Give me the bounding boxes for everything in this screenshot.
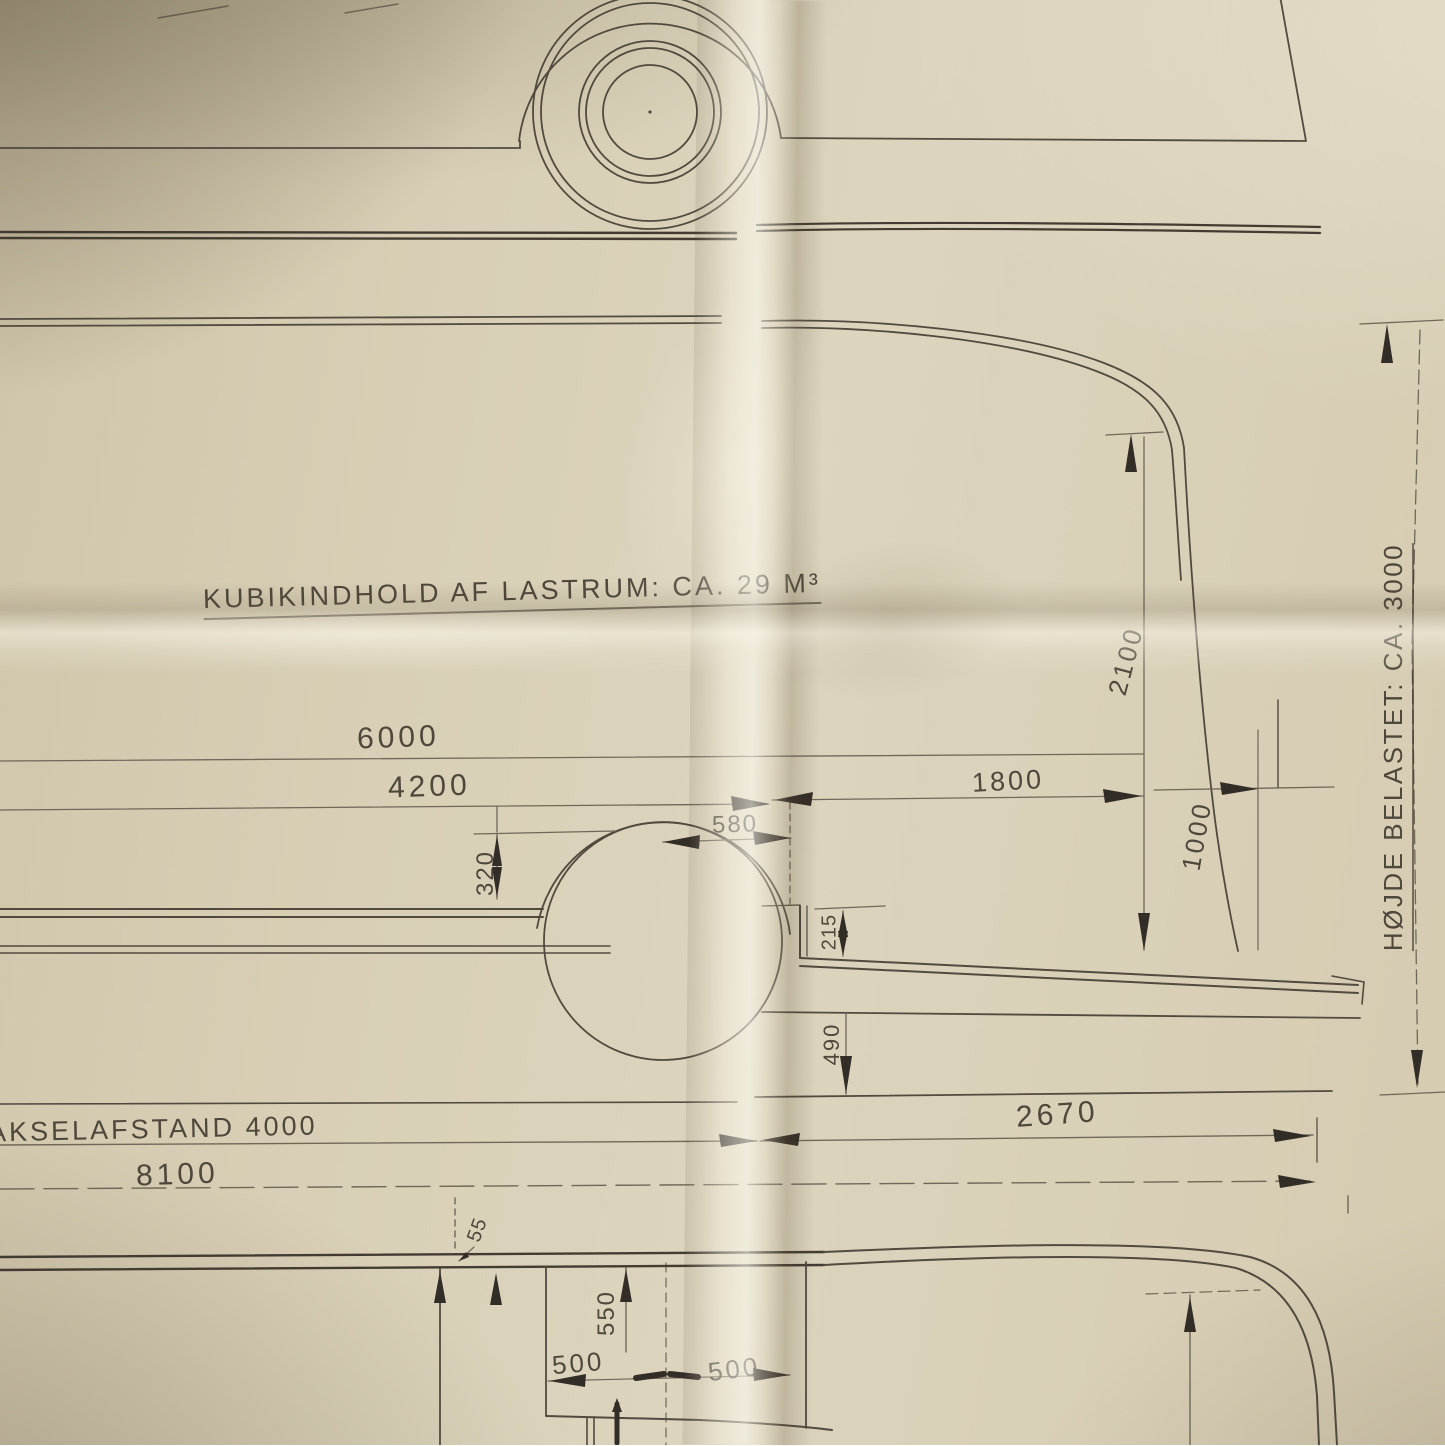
dim-label-6000: 6000 (356, 720, 440, 757)
dim-label-550: 550 (593, 1290, 621, 1336)
dim-label-500-left: 500 (551, 1346, 606, 1381)
bottom-truck-top-view (0, 1245, 1337, 1445)
dim-label-320: 320 (472, 850, 500, 896)
blueprint-photo: KUBIKINDHOLD AF LASTRUM: CA. 29 M³ AKSEL… (0, 0, 1445, 1445)
dim-label-4200: 4200 (387, 769, 471, 806)
dim-label-580: 580 (712, 810, 759, 840)
dim-label-500-right: 500 (706, 1351, 762, 1388)
annotation-height-loaded: HØJDE BELASTET: CA. 3000 (1378, 543, 1414, 951)
middle-truck-side-view (0, 316, 1364, 1104)
dim-label-490: 490 (819, 1023, 845, 1066)
dim-label-1800: 1800 (971, 764, 1045, 799)
dim-label-8100: 8100 (135, 1157, 219, 1194)
top-truck-side-view (0, 0, 1320, 239)
drawing-linework (0, 0, 1445, 1445)
dim-label-215: 215 (819, 914, 842, 950)
dim-label-2670: 2670 (1015, 1095, 1100, 1135)
